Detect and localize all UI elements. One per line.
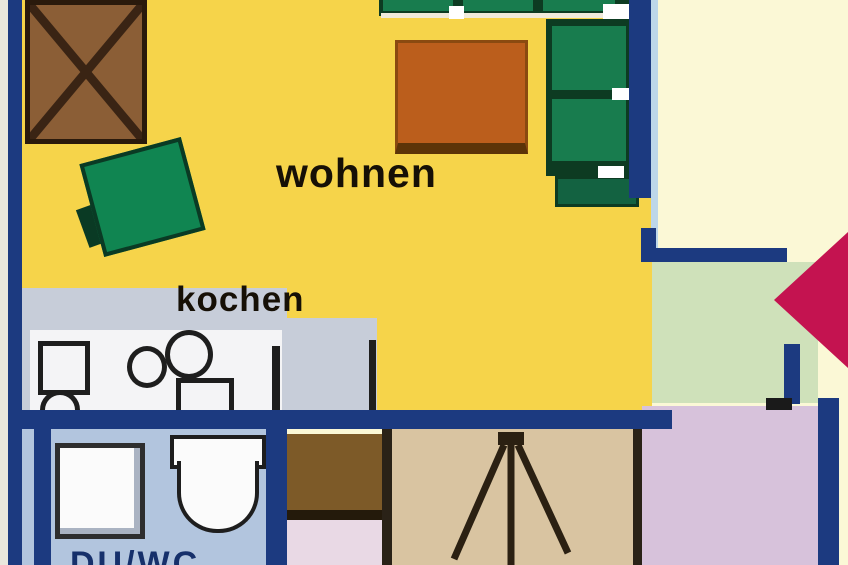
exterior-edge-left: [0, 0, 8, 565]
wall-left: [8, 0, 22, 565]
counter-edge-line: [272, 346, 280, 412]
sink-bowl-small: [127, 346, 167, 388]
partition-line-right: [633, 429, 642, 565]
lavender-room-floor: [642, 406, 818, 565]
sofa-connector: [598, 166, 624, 178]
dining-table: [25, 0, 147, 144]
sofa-section: [552, 26, 626, 90]
sofa-connector: [449, 6, 464, 19]
sofa-connector: [603, 4, 631, 20]
sofa-section: [552, 99, 626, 161]
wall-entry-top: [645, 248, 787, 262]
door-swing-icon: [438, 429, 583, 565]
bathroom-label: DU/WC: [70, 545, 200, 565]
wall-main-horizontal: [22, 410, 672, 429]
cooktop-square: [38, 341, 90, 395]
wall-bath-right: [266, 423, 287, 565]
sofa-section: [463, 0, 533, 11]
wall-right-edge-highlight: [651, 0, 658, 262]
wall-entry-stub: [641, 228, 656, 262]
floor-plan: wohnen kochen DU/WC: [0, 0, 848, 565]
table-cross-icon: [30, 5, 142, 139]
partition-line-left: [382, 427, 392, 565]
sink-bowl-large: [165, 330, 213, 379]
wall-right-top: [629, 0, 652, 198]
living-room-label: wohnen: [276, 150, 437, 197]
coffee-table: [395, 40, 528, 154]
sofa-seam-line: [381, 13, 632, 18]
kitchen-divider-line: [369, 340, 376, 412]
shower-square: [55, 443, 145, 539]
kitchen-label: kochen: [176, 280, 305, 320]
pink-floor-patch: [287, 520, 385, 565]
sofa-end-piece: [555, 176, 639, 207]
wall-right-bottom: [818, 398, 839, 565]
wall-bath-inner: [34, 423, 51, 565]
wall-stub: [766, 398, 792, 410]
wardrobe-box: [287, 434, 382, 520]
sofa-section: [383, 0, 453, 11]
entrance-arrow-icon: [774, 232, 848, 368]
